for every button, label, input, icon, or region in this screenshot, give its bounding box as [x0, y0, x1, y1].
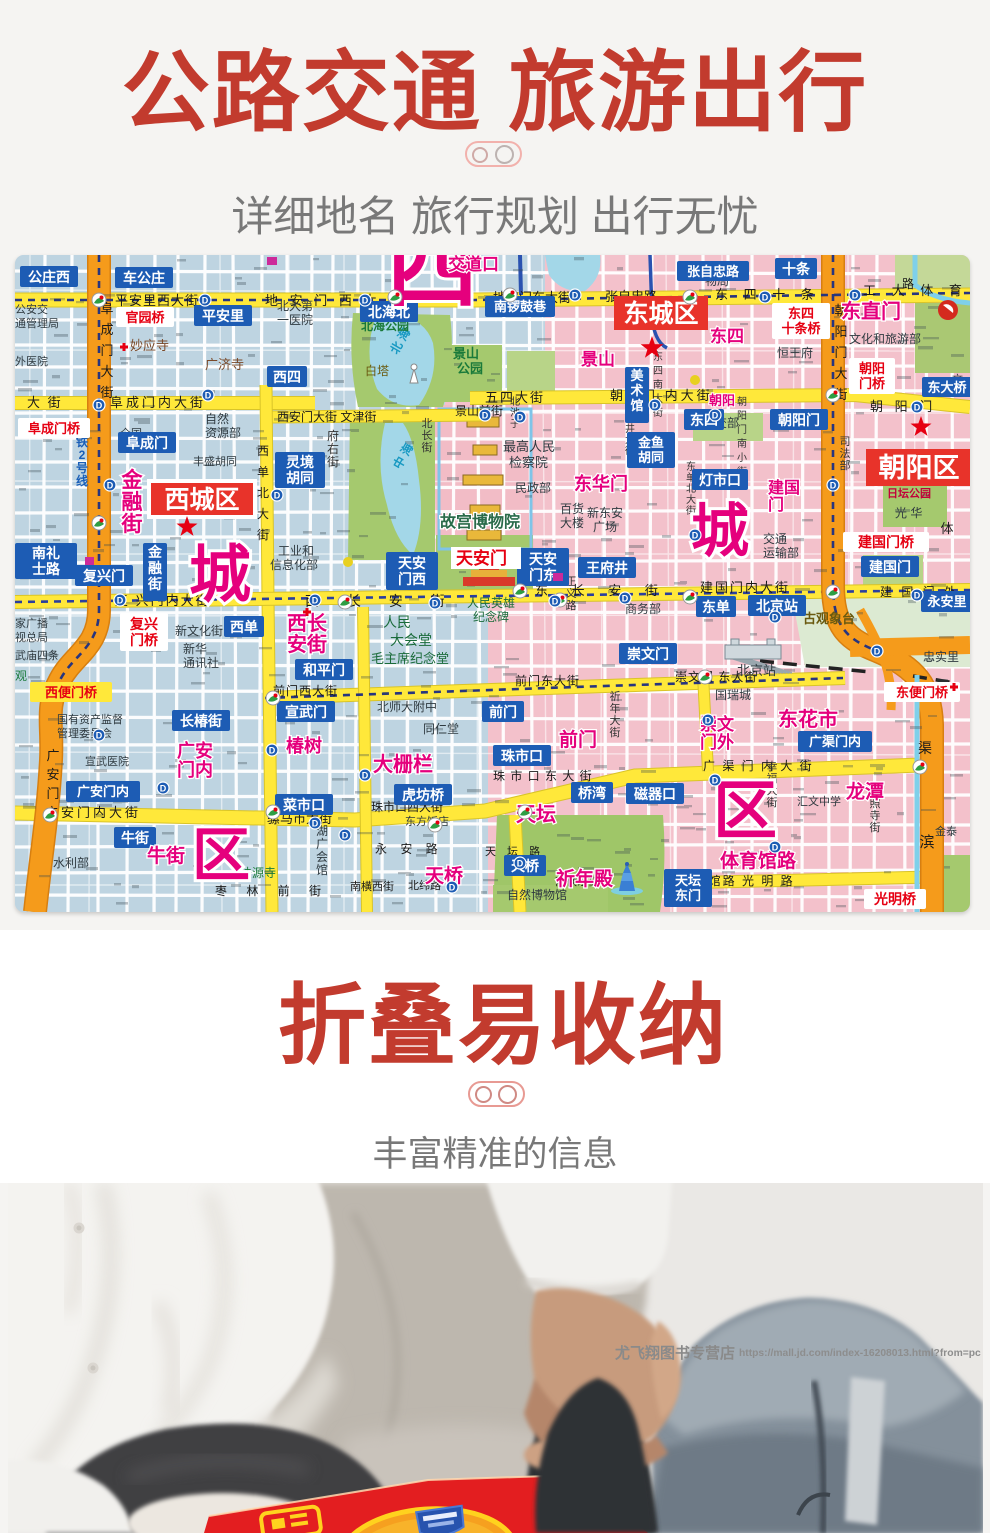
svg-text:家广播: 家广播 [15, 616, 48, 630]
svg-text:同仁堂: 同仁堂 [423, 722, 459, 736]
svg-text:门西: 门西 [398, 571, 426, 587]
svg-text:D: D [914, 591, 921, 601]
svg-text:北京站: 北京站 [737, 663, 776, 678]
svg-text:一医院: 一医院 [277, 313, 313, 327]
svg-text:祈: 祈 [610, 690, 621, 703]
svg-text:前门西大街: 前门西大街 [273, 683, 338, 698]
svg-text:D: D [312, 819, 319, 829]
svg-text:D: D [449, 883, 456, 893]
svg-text:复兴门: 复兴门 [82, 568, 125, 584]
svg-text:D: D [762, 293, 769, 303]
svg-text:十条: 十条 [782, 261, 811, 277]
svg-text:幸: 幸 [767, 760, 778, 773]
svg-text:张自忠路: 张自忠路 [687, 264, 740, 279]
svg-text:东大桥: 东大桥 [927, 380, 967, 395]
svg-text:部: 部 [840, 458, 851, 472]
svg-text:桥湾: 桥湾 [578, 785, 606, 801]
svg-text:体: 体 [940, 521, 953, 536]
svg-text:宣武门: 宣武门 [285, 704, 327, 720]
svg-text:通管理局: 通管理局 [15, 316, 59, 330]
svg-text:2: 2 [79, 448, 86, 462]
svg-text:街: 街 [121, 512, 143, 536]
svg-text:文化和旅游部: 文化和旅游部 [849, 331, 921, 346]
svg-text:大楼: 大楼 [560, 515, 584, 530]
svg-text:D: D [692, 531, 699, 541]
svg-text:广 渠 门 内 大 街: 广 渠 门 内 大 街 [703, 758, 814, 773]
svg-text:国有资产监督: 国有资产监督 [57, 712, 123, 726]
svg-text:D: D [362, 771, 369, 781]
svg-text:公园: 公园 [457, 361, 483, 376]
svg-text:D: D [914, 403, 921, 413]
svg-text:融: 融 [122, 491, 143, 514]
svg-text:南礼: 南礼 [32, 545, 60, 561]
svg-text:忠实里: 忠实里 [923, 649, 959, 664]
svg-text:门: 门 [737, 423, 747, 436]
svg-text:公安交: 公安交 [15, 302, 48, 316]
svg-text:D: D [274, 491, 281, 501]
svg-text:门: 门 [768, 495, 784, 514]
svg-text:汇文中学: 汇文中学 [797, 794, 841, 808]
svg-text:古观象台: 古观象台 [803, 611, 855, 626]
svg-text:金: 金 [147, 544, 163, 560]
svg-text:D: D [652, 401, 659, 411]
svg-text:新东安: 新东安 [587, 505, 623, 520]
svg-text:D: D [712, 411, 719, 421]
svg-text:寺: 寺 [870, 809, 881, 822]
svg-text:珠 市 口 东 大 街: 珠 市 口 东 大 街 [493, 768, 593, 783]
svg-text:检察院: 检察院 [509, 455, 548, 470]
svg-text:司: 司 [840, 436, 851, 448]
svg-text:小: 小 [737, 452, 747, 464]
svg-text:北师大附中: 北师大附中 [377, 699, 437, 714]
svg-text:国瑞城: 国瑞城 [715, 688, 751, 702]
svg-text:视总局: 视总局 [15, 630, 48, 644]
svg-text:水利部: 水利部 [53, 855, 89, 870]
svg-text:D: D [772, 843, 779, 853]
svg-text:灵境: 灵境 [286, 454, 314, 470]
svg-text:街: 街 [257, 528, 269, 542]
svg-text:毛主席纪念堂: 毛主席纪念堂 [371, 651, 449, 666]
svg-text:门: 门 [834, 345, 847, 360]
svg-text:D: D [517, 413, 524, 423]
svg-text:菜市口: 菜市口 [282, 797, 325, 813]
svg-text:南: 南 [737, 437, 747, 450]
svg-text:崇文门: 崇文门 [627, 646, 669, 662]
svg-text:西单: 西单 [230, 619, 258, 635]
svg-text:成: 成 [100, 322, 113, 337]
svg-text:单: 单 [257, 465, 269, 479]
svg-text:平安里西大街: 平安里西大街 [115, 293, 199, 308]
svg-text:通讯社: 通讯社 [183, 655, 219, 670]
svg-text:区: 区 [713, 775, 777, 847]
svg-text:D: D [517, 859, 524, 869]
svg-text:大: 大 [834, 366, 847, 381]
svg-text:安街: 安街 [287, 632, 327, 656]
svg-text:天安门: 天安门 [456, 548, 507, 568]
svg-text:前门东大街: 前门东大街 [515, 673, 580, 688]
svg-text:胡同: 胡同 [286, 470, 314, 486]
svg-text:D: D [205, 391, 212, 401]
svg-text:广安门内: 广安门内 [77, 784, 129, 799]
svg-text:广安: 广安 [177, 740, 213, 761]
svg-text:朝阳: 朝阳 [859, 361, 885, 376]
svg-text:门桥: 门桥 [130, 632, 159, 648]
svg-text:D: D [160, 784, 167, 794]
svg-text:外医院: 外医院 [15, 354, 48, 368]
svg-text:西: 西 [257, 444, 269, 458]
svg-text:长: 长 [422, 429, 433, 442]
svg-text:王府井: 王府井 [586, 560, 628, 576]
svg-text:门: 门 [100, 343, 113, 358]
svg-text:工业和: 工业和 [278, 544, 314, 558]
svg-text:光 华: 光 华 [895, 506, 922, 520]
svg-text:永安里: 永安里 [926, 594, 966, 609]
svg-text:东四: 东四 [710, 326, 744, 346]
svg-text:金泰: 金泰 [935, 824, 957, 838]
svg-text:南锣鼓巷: 南锣鼓巷 [494, 299, 547, 314]
svg-text:观: 观 [15, 669, 27, 683]
svg-text:渠: 渠 [918, 740, 932, 756]
svg-text:前门: 前门 [559, 728, 597, 751]
svg-text:胡同: 胡同 [638, 450, 664, 465]
svg-text:融: 融 [148, 560, 162, 576]
svg-text:新华: 新华 [183, 641, 207, 656]
svg-text:新文化街: 新文化街 [175, 623, 223, 638]
svg-text:D: D [830, 481, 837, 491]
svg-text:https://mall.jd.com/index-1620: https://mall.jd.com/index-16208013.html?… [739, 1348, 981, 1359]
svg-text:灯市口: 灯市口 [699, 472, 741, 488]
svg-text:北大第: 北大第 [277, 299, 313, 313]
svg-text:D: D [712, 776, 719, 786]
svg-text:天坛: 天坛 [675, 873, 701, 888]
svg-text:大 街: 大 街 [27, 395, 63, 410]
svg-text:天安: 天安 [398, 555, 426, 571]
svg-text:尤飞翔图书专营店: 尤飞翔图书专营店 [615, 1344, 735, 1362]
svg-text:D: D [362, 296, 369, 306]
svg-text:美: 美 [630, 368, 644, 383]
svg-text:前门: 前门 [489, 704, 517, 720]
svg-text:广: 广 [316, 837, 328, 851]
svg-text:和平门: 和平门 [303, 662, 345, 678]
svg-text:号: 号 [76, 460, 88, 475]
svg-text:北: 北 [510, 396, 520, 408]
svg-text:日坛公园: 日坛公园 [887, 486, 931, 500]
svg-text:金: 金 [121, 468, 144, 492]
svg-text:广济寺: 广济寺 [205, 357, 244, 372]
svg-text:祈年殿: 祈年殿 [556, 867, 614, 890]
svg-text:公庄西: 公庄西 [28, 269, 70, 285]
svg-text:信息化部: 信息化部 [270, 557, 318, 572]
svg-text:街: 街 [870, 820, 881, 834]
svg-text:人民英雄: 人民英雄 [467, 595, 515, 610]
svg-text:北: 北 [422, 417, 433, 430]
svg-text:建国门桥: 建国门桥 [858, 534, 915, 550]
svg-text:朝阳区: 朝阳区 [879, 453, 960, 483]
svg-text:街: 街 [610, 725, 621, 739]
svg-text:东便门桥: 东便门桥 [896, 685, 949, 700]
svg-text:右: 右 [327, 441, 339, 456]
svg-text:东华门: 东华门 [574, 473, 628, 494]
svg-text:府: 府 [327, 428, 339, 443]
svg-text:士路: 士路 [32, 561, 61, 577]
svg-text:人民: 人民 [383, 614, 411, 630]
svg-text:东花市: 东花市 [778, 707, 838, 731]
svg-text:最高人民: 最高人民 [503, 439, 555, 454]
svg-text:大会堂: 大会堂 [390, 632, 432, 648]
svg-text:西城区: 西城区 [164, 486, 239, 514]
svg-text:广渠门内: 广渠门内 [809, 734, 861, 749]
svg-text:运输部: 运输部 [763, 545, 799, 560]
svg-text:区: 区 [192, 823, 250, 888]
svg-text:路: 路 [902, 276, 914, 291]
svg-text:会: 会 [316, 850, 328, 864]
svg-text:门内: 门内 [177, 759, 213, 780]
svg-text:建国门内大街: 建国门内大街 [700, 580, 790, 595]
svg-text:D: D [874, 647, 881, 657]
svg-text:D: D [96, 401, 103, 411]
svg-text:虎坊桥: 虎坊桥 [402, 787, 445, 803]
svg-text:珠市口: 珠市口 [501, 748, 543, 764]
svg-text:法: 法 [840, 446, 851, 460]
svg-text:D: D [772, 613, 779, 623]
svg-text:城: 城 [189, 541, 251, 610]
svg-text:朝: 朝 [737, 396, 747, 408]
svg-text:天安: 天安 [529, 551, 557, 567]
svg-text:阳: 阳 [834, 324, 847, 339]
svg-text:街: 街 [100, 385, 113, 400]
svg-text:西便门桥: 西便门桥 [45, 685, 98, 700]
svg-text:馆: 馆 [630, 398, 643, 413]
svg-text:年: 年 [610, 701, 621, 715]
svg-text:街: 街 [147, 576, 162, 592]
svg-text:朝 阳 门: 朝 阳 门 [870, 399, 936, 414]
svg-text:北: 北 [257, 486, 269, 500]
svg-text:街: 街 [422, 440, 433, 454]
svg-text:阳: 阳 [737, 410, 747, 422]
svg-text:东门: 东门 [675, 888, 701, 903]
svg-text:D: D [852, 291, 859, 301]
svg-text:D: D [572, 291, 579, 301]
svg-text:街: 街 [327, 455, 339, 469]
svg-text:阜成门: 阜成门 [126, 435, 168, 451]
svg-text:阜成门桥: 阜成门桥 [28, 421, 81, 436]
svg-text:门东: 门东 [529, 567, 557, 583]
svg-text:龙潭: 龙潭 [846, 780, 884, 803]
svg-text:东单: 东单 [702, 599, 730, 615]
svg-text:馆: 馆 [316, 862, 328, 877]
svg-text:东直门: 东直门 [841, 299, 901, 323]
svg-text:建国门: 建国门 [869, 559, 911, 575]
svg-text:白塔: 白塔 [365, 363, 389, 378]
svg-text:天桥: 天桥 [425, 864, 464, 887]
svg-text:线: 线 [76, 473, 88, 488]
svg-text:故宫博物院: 故宫博物院 [440, 512, 520, 531]
svg-text:D: D [342, 831, 349, 841]
svg-text:牛街: 牛街 [147, 844, 185, 867]
svg-text:滨: 滨 [919, 834, 934, 851]
svg-text:门: 门 [46, 786, 59, 801]
svg-text:交通: 交通 [763, 531, 787, 546]
svg-text:建国: 建国 [768, 479, 800, 497]
svg-text:东四: 东四 [788, 306, 814, 321]
svg-text:十条桥: 十条桥 [781, 321, 821, 336]
svg-text:牛街: 牛街 [121, 830, 149, 846]
svg-text:D: D [552, 597, 559, 607]
svg-text:大栅栏: 大栅栏 [373, 752, 433, 776]
svg-text:体育馆路: 体育馆路 [720, 849, 797, 872]
svg-text:大: 大 [610, 713, 621, 727]
svg-text:百货: 百货 [560, 501, 584, 516]
svg-text:妙应寺: 妙应寺 [130, 338, 169, 353]
svg-text:D: D [117, 596, 124, 606]
svg-text:复兴: 复兴 [129, 616, 158, 632]
svg-text:商务部: 商务部 [625, 601, 661, 616]
svg-text:交道口: 交道口 [448, 255, 499, 274]
svg-text:工 大 体 育: 工 大 体 育 [863, 283, 968, 298]
svg-text:D: D [482, 411, 489, 421]
svg-text:丰盛胡同: 丰盛胡同 [193, 454, 237, 468]
svg-text:景山: 景山 [453, 346, 479, 361]
svg-text:官园桥: 官园桥 [125, 310, 165, 325]
svg-text:恒王府: 恒王府 [777, 345, 813, 360]
svg-text:西安门大街 文津街: 西安门大街 文津街 [277, 409, 376, 424]
svg-text:四: 四 [653, 366, 663, 377]
svg-text:椿树: 椿树 [286, 735, 322, 756]
svg-text:D: D [432, 599, 439, 609]
svg-text:大: 大 [257, 507, 269, 521]
svg-text:D: D [705, 716, 712, 726]
svg-text:长椿街: 长椿街 [180, 713, 222, 729]
svg-text:民政部: 民政部 [515, 480, 551, 495]
svg-text:D: D [107, 481, 114, 491]
svg-text:金鱼: 金鱼 [637, 435, 664, 450]
svg-text:自然: 自然 [205, 411, 229, 426]
svg-text:纪念碑: 纪念碑 [473, 609, 509, 624]
svg-text:D: D [312, 596, 319, 606]
svg-text:平安里: 平安里 [202, 308, 244, 324]
svg-text:资源部: 资源部 [205, 425, 241, 440]
svg-text:西四: 西四 [273, 369, 301, 385]
svg-text:广场: 广场 [593, 520, 617, 534]
svg-text:安: 安 [46, 767, 59, 782]
svg-text:宣武医院: 宣武医院 [85, 754, 129, 768]
svg-text:D: D [269, 746, 276, 756]
svg-text:术: 术 [629, 383, 643, 398]
svg-text:武庙四条: 武庙四条 [15, 648, 59, 662]
svg-text:南横西街: 南横西街 [350, 879, 394, 893]
svg-text:永 安 路: 永 安 路 [375, 841, 443, 856]
svg-text:车公庄: 车公庄 [123, 270, 165, 286]
svg-text:大: 大 [100, 364, 113, 379]
svg-text:阜成门内大街: 阜成门内大街 [110, 395, 206, 410]
svg-text:广安门内大街: 广安门内大街 [45, 805, 141, 820]
svg-text:磁器口: 磁器口 [634, 786, 676, 802]
svg-text:朝阳: 朝阳 [709, 393, 735, 408]
svg-text:朝阳门: 朝阳门 [778, 412, 820, 428]
svg-text:广: 广 [46, 748, 59, 763]
svg-text:光明桥: 光明桥 [873, 891, 917, 907]
svg-text:南: 南 [653, 378, 663, 391]
svg-text:D: D [96, 731, 103, 741]
svg-text:D: D [622, 594, 629, 604]
svg-text:D: D [202, 296, 209, 306]
svg-text:景山: 景山 [581, 350, 615, 369]
svg-text:门外: 门外 [700, 732, 734, 752]
svg-text:门桥: 门桥 [859, 376, 886, 391]
